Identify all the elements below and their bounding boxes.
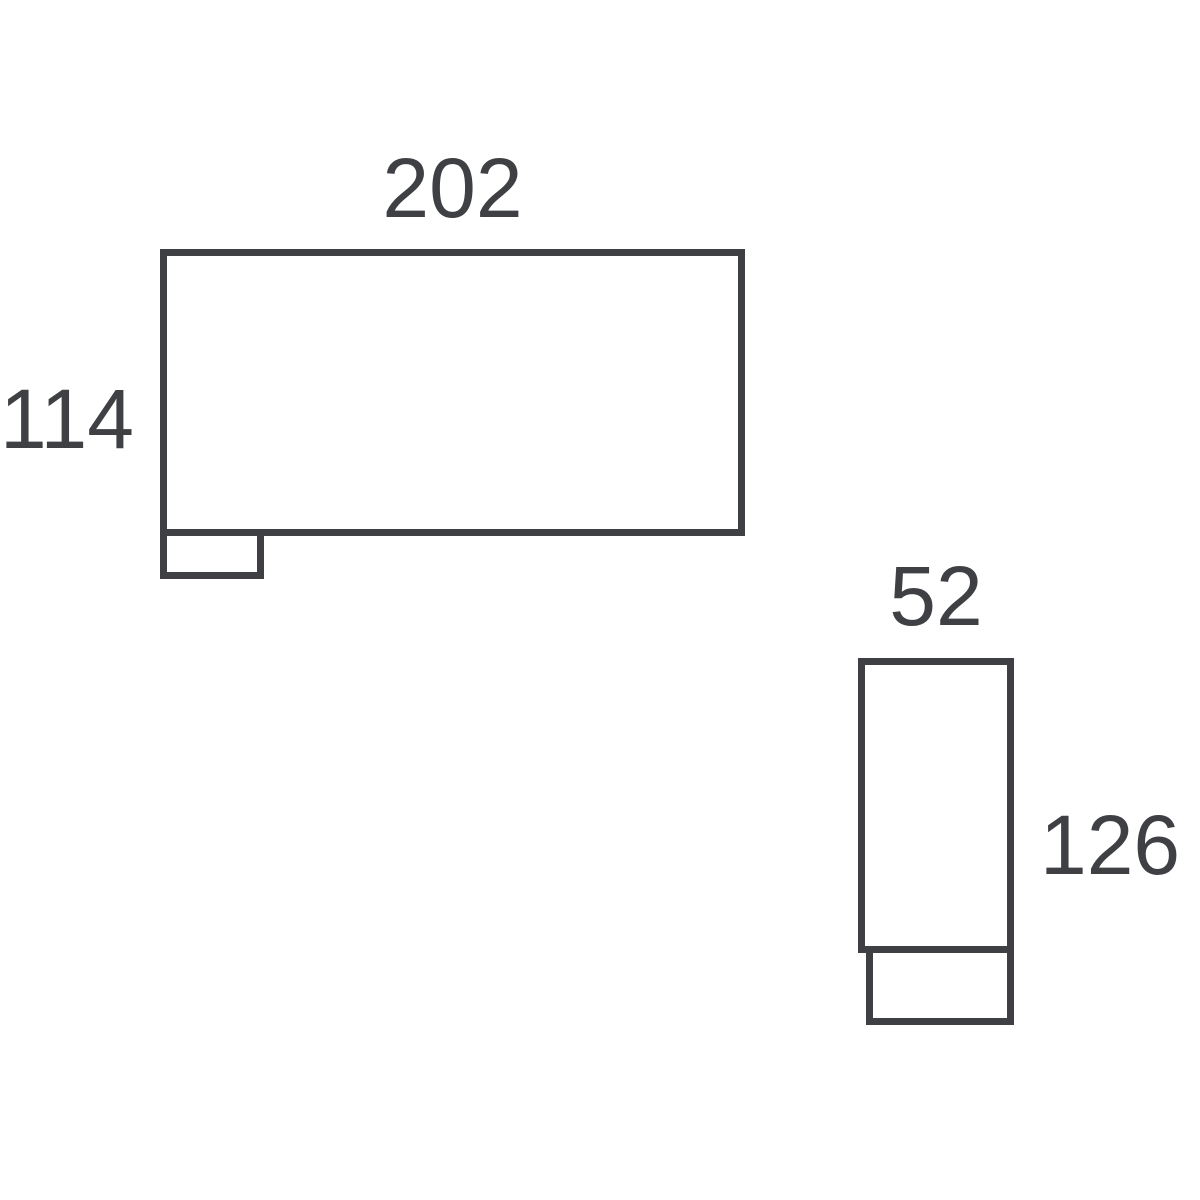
module-b-outline [858, 658, 1014, 953]
module-b-height-label: 126 [1040, 803, 1180, 887]
module-a-outline [160, 249, 745, 536]
module-b-width-label: 52 [858, 554, 1014, 638]
dimension-diagram: 202 114 52 126 [0, 0, 1200, 1200]
module-a-foot-outline [160, 529, 264, 579]
module-b-foot-outline [866, 946, 1014, 1025]
module-a-width-label: 202 [160, 146, 745, 230]
module-a-height-label: 114 [0, 377, 130, 461]
